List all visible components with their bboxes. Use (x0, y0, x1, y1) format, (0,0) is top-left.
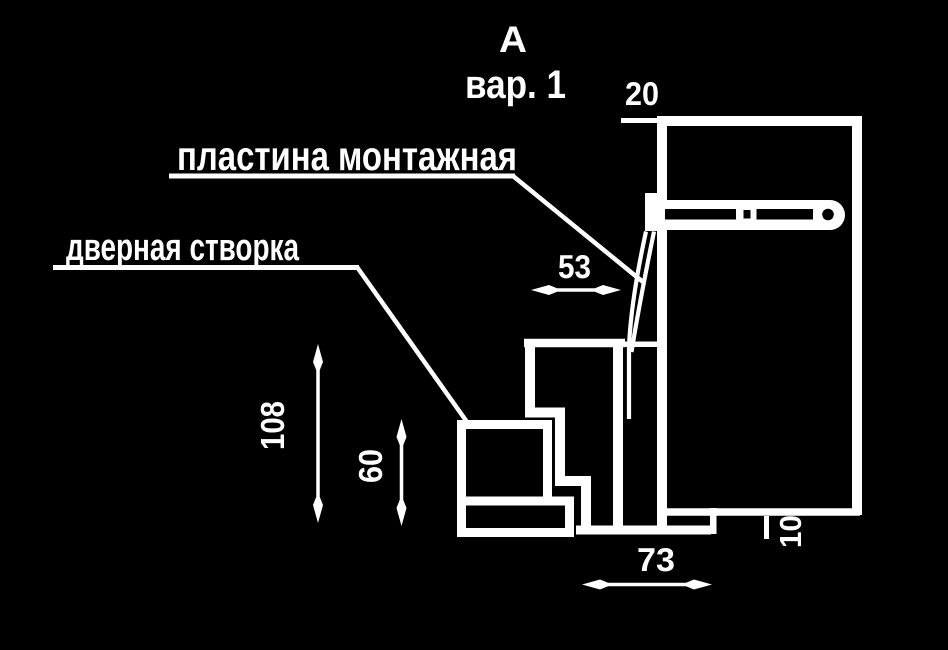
svg-text:вар. 1: вар. 1 (465, 63, 566, 107)
svg-text:10: 10 (773, 515, 808, 548)
svg-text:А: А (499, 19, 527, 60)
svg-text:дверная створка: дверная створка (66, 227, 300, 269)
svg-text:108: 108 (254, 401, 291, 450)
svg-text:пластина монтажная: пластина монтажная (177, 133, 517, 179)
svg-text:20: 20 (625, 75, 659, 112)
svg-text:60: 60 (352, 449, 389, 483)
svg-text:73: 73 (637, 541, 675, 578)
svg-text:53: 53 (558, 248, 591, 285)
